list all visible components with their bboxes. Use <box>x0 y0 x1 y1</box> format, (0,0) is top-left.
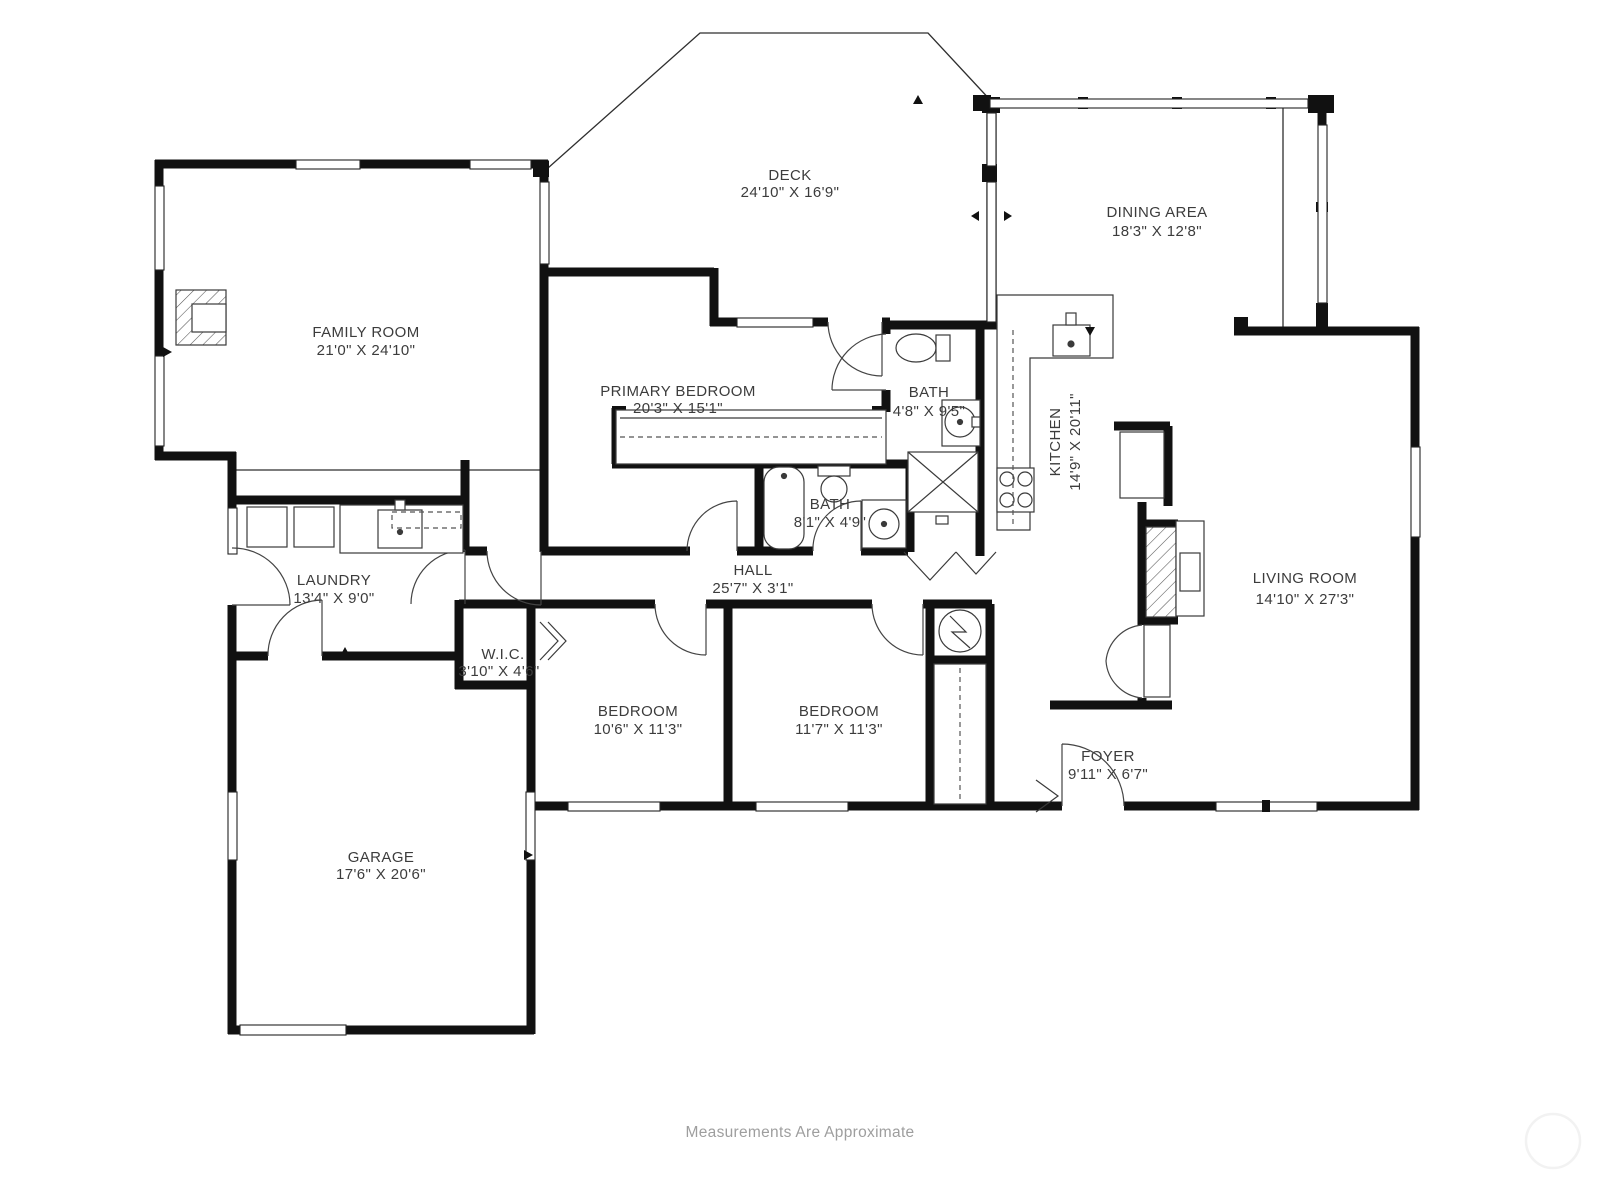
floorplan-page: DECK 24'10" X 16'9" DINING AREA 18'3" X … <box>0 0 1600 1200</box>
room-dims-bedroom-1: 10'6" X 11'3" <box>594 721 683 738</box>
room-label-wic: W.I.C. <box>481 646 524 663</box>
fireplace-icon <box>176 290 226 345</box>
room-label-laundry: LAUNDRY <box>297 572 371 589</box>
room-label-hall: HALL <box>733 562 772 579</box>
room-label-family: FAMILY ROOM <box>312 324 419 341</box>
room-dims-deck: 24'10" X 16'9" <box>741 184 840 201</box>
room-dims-living: 14'10" X 27'3" <box>1256 591 1355 608</box>
footer-note: Measurements Are Approximate <box>0 1124 1600 1142</box>
water-heater-icon <box>939 610 981 652</box>
room-label-primary: PRIMARY BEDROOM <box>600 383 755 400</box>
room-label-living: LIVING ROOM <box>1253 570 1357 587</box>
living-closet <box>1144 625 1170 697</box>
walls <box>155 95 1419 1034</box>
room-dims-dining: 18'3" X 12'8" <box>1112 223 1202 240</box>
window-openings <box>155 99 1420 1035</box>
room-label-garage: GARAGE <box>348 849 415 866</box>
room-label-bath-hall: BATH <box>810 496 851 513</box>
room-label-kitchen: KITCHEN <box>1047 408 1064 477</box>
room-dims-garage: 17'6" X 20'6" <box>336 866 426 883</box>
room-label-deck: DECK <box>768 167 811 184</box>
stove-icon <box>997 468 1034 512</box>
room-dims-primary: 20'3" X 15'1" <box>633 400 723 417</box>
room-dims-bath-upper: 4'8" X 9'5" <box>893 403 966 420</box>
floorplan-svg: DECK 24'10" X 16'9" DINING AREA 18'3" X … <box>0 0 1600 1200</box>
room-dims-kitchen: 14'9" X 20'11" <box>1067 393 1084 491</box>
washer-icon <box>247 507 287 547</box>
room-dims-wic: 3'10" X 4'6" <box>458 663 539 680</box>
toilet-icon <box>896 334 950 362</box>
room-label-bedroom-2: BEDROOM <box>799 703 879 720</box>
room-label-bedroom-1: BEDROOM <box>598 703 678 720</box>
room-dims-bedroom-2: 11'7" X 11'3" <box>795 721 883 738</box>
fridge-icon <box>1120 432 1164 498</box>
room-dims-hall: 25'7" X 3'1" <box>712 580 793 597</box>
room-dims-laundry: 13'4" X 9'0" <box>293 590 374 607</box>
dryer-icon <box>294 507 334 547</box>
room-label-foyer: FOYER <box>1081 748 1135 765</box>
vanity-sink-icon <box>862 500 906 548</box>
tub-icon <box>764 467 804 549</box>
shower-icon <box>908 452 978 524</box>
living-fireplace-icon <box>1146 521 1204 617</box>
room-dims-foyer: 9'11" X 6'7" <box>1068 766 1148 783</box>
room-dims-family: 21'0" X 24'10" <box>317 342 416 359</box>
room-dims-bath-hall: 8'1" X 4'9" <box>794 514 867 531</box>
laundry-sink-icon <box>340 500 463 553</box>
room-label-dining: DINING AREA <box>1106 204 1207 221</box>
room-label-bath-upper: BATH <box>909 384 950 401</box>
